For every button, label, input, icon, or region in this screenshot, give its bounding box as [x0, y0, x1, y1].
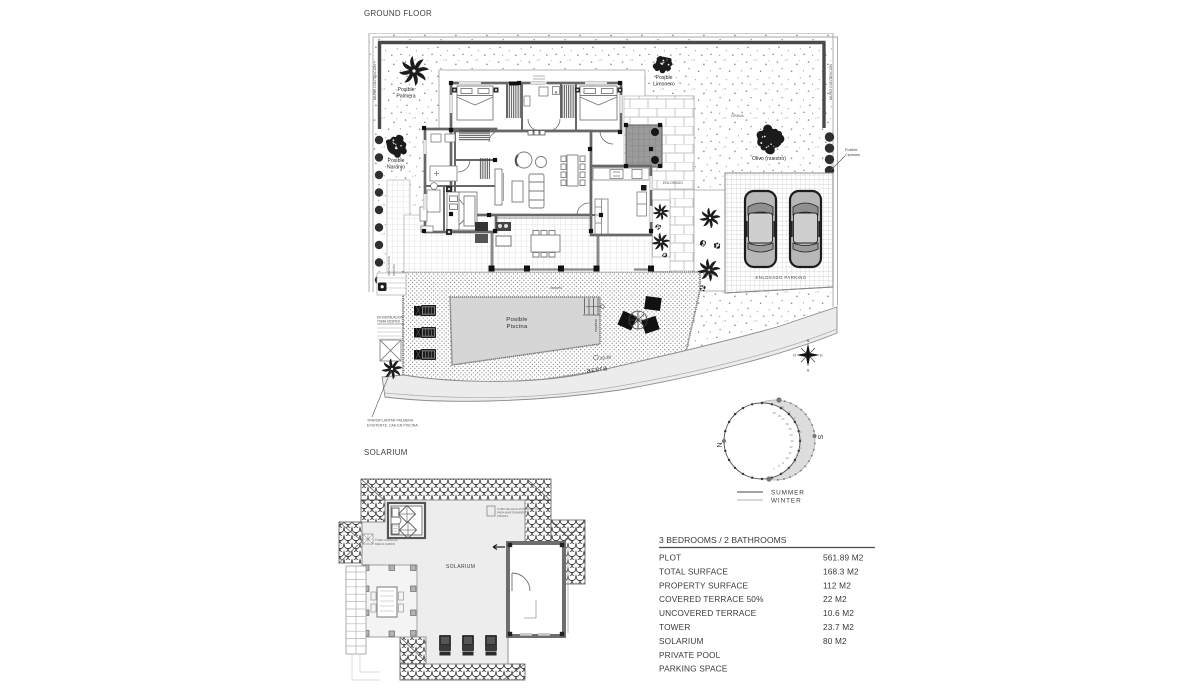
svg-text:Posible: Posible	[703, 268, 714, 272]
svg-text:COVERED TERRACE 50%: COVERED TERRACE 50%	[659, 594, 764, 604]
svg-text:INSTALACION: INSTALACION	[387, 256, 391, 276]
svg-text:WINTER: WINTER	[771, 498, 802, 505]
svg-text:TOTAL SURFACE: TOTAL SURFACE	[659, 566, 728, 576]
svg-text:PRIVATE POOL: PRIVATE POOL	[659, 650, 721, 660]
svg-text:80 M2: 80 M2	[823, 636, 847, 646]
svg-text:Posible: Posible	[845, 148, 857, 152]
svg-text:E: E	[820, 353, 823, 357]
svg-text:Piscina: Piscina	[506, 324, 528, 330]
svg-text:PROPERTY SURFACE: PROPERTY SURFACE	[659, 580, 749, 590]
svg-text:17: 17	[787, 410, 791, 414]
svg-text:S: S	[816, 435, 823, 440]
svg-text:12: 12	[798, 446, 802, 450]
svg-text:168.3 M2: 168.3 M2	[823, 566, 859, 576]
svg-text:Limonero: Limonero	[653, 82, 675, 88]
svg-text:10: 10	[785, 456, 789, 460]
svg-text:10: 10	[792, 460, 796, 464]
svg-text:GROUND FLOOR: GROUND FLOOR	[364, 9, 432, 18]
svg-text:14: 14	[789, 433, 793, 437]
svg-text:16: 16	[792, 416, 796, 420]
svg-text:Posible: Posible	[387, 158, 404, 164]
svg-text:RIEGO JARDIN: RIEGO JARDIN	[375, 542, 395, 546]
svg-text:SUMMER: SUMMER	[771, 490, 805, 497]
svg-text:16: 16	[785, 422, 789, 426]
svg-text:Posible: Posible	[655, 75, 672, 81]
svg-text:13: 13	[790, 439, 794, 443]
svg-text:11: 11	[789, 451, 792, 455]
svg-text:10.6 M2: 10.6 M2	[823, 608, 854, 618]
svg-text:EXISTENTE: CAE EN PISCINA: EXISTENTE: CAE EN PISCINA	[367, 424, 418, 428]
svg-text:15: 15	[795, 423, 799, 427]
svg-text:Olivo (nuestro): Olivo (nuestro)	[752, 156, 786, 162]
svg-text:escalera: escalera	[594, 319, 598, 332]
svg-text:11: 11	[796, 453, 799, 457]
svg-text:Plantas: Plantas	[703, 273, 715, 277]
svg-text:SOLARIUM: SOLARIUM	[446, 564, 475, 570]
svg-text:TOWER: TOWER	[659, 622, 690, 632]
svg-text:PISCINA: PISCINA	[497, 514, 508, 518]
svg-text:N: N	[807, 339, 810, 343]
svg-text:Posible: Posible	[506, 317, 528, 323]
svg-text:14: 14	[798, 430, 802, 434]
svg-text:Cipreses: Cipreses	[845, 153, 860, 157]
svg-text:PISCINA: PISCINA	[392, 264, 396, 276]
svg-text:23.7 M2: 23.7 M2	[823, 622, 854, 632]
svg-text:112 M2: 112 M2	[823, 580, 851, 590]
svg-text:TOMA CESPED: TOMA CESPED	[377, 320, 401, 324]
svg-text:19: 19	[772, 411, 776, 415]
svg-text:S: S	[807, 369, 810, 373]
svg-text:O: O	[793, 353, 796, 357]
svg-text:ENLOSADO: ENLOSADO	[663, 181, 683, 185]
svg-text:GRAVA: GRAVA	[731, 114, 744, 118]
svg-text:TRANSPLANTAR PALMERA: TRANSPLANTAR PALMERA	[367, 419, 414, 423]
svg-text:12: 12	[789, 445, 793, 449]
svg-text:22 M2: 22 M2	[823, 594, 847, 604]
svg-text:cesped: cesped	[550, 286, 562, 290]
svg-text:PLOT: PLOT	[659, 553, 681, 563]
svg-text:Palmera: Palmera	[396, 94, 415, 100]
svg-text:15: 15	[788, 427, 792, 431]
svg-text:MURO CONTENCIÓN: MURO CONTENCIÓN	[372, 63, 377, 100]
svg-text:ENLOSADO PARKING: ENLOSADO PARKING	[756, 275, 807, 280]
svg-text:Posible: Posible	[397, 87, 414, 93]
svg-text:UNCOVERED TERRACE: UNCOVERED TERRACE	[659, 608, 757, 618]
svg-text:18: 18	[780, 405, 784, 409]
svg-text:3 BEDROOMS / 2 BATHROOMS: 3 BEDROOMS / 2 BATHROOMS	[659, 535, 787, 545]
svg-text:N: N	[717, 442, 724, 447]
svg-text:561.89 M2: 561.89 M2	[823, 553, 864, 563]
svg-text:SOLARIUM: SOLARIUM	[659, 636, 704, 646]
svg-text:SOLARIUM: SOLARIUM	[364, 448, 408, 457]
svg-text:13: 13	[798, 438, 802, 442]
svg-text:MURO CONTENCIÓN: MURO CONTENCIÓN	[828, 63, 833, 100]
svg-text:PARKING SPACE: PARKING SPACE	[659, 664, 728, 674]
svg-text:17: 17	[781, 417, 785, 421]
svg-text:Naranjo: Naranjo	[387, 165, 405, 171]
